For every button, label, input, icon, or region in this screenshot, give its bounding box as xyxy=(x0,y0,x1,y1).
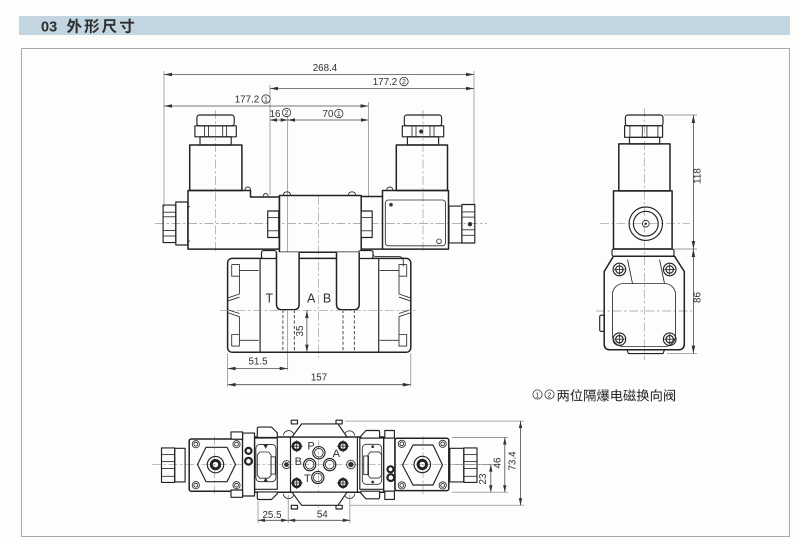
svg-text:118: 118 xyxy=(693,168,704,184)
svg-text:2: 2 xyxy=(285,110,289,117)
svg-text:177.2: 177.2 xyxy=(373,77,398,88)
svg-text:16: 16 xyxy=(270,109,281,120)
svg-text:86: 86 xyxy=(693,292,704,303)
svg-text:1: 1 xyxy=(337,111,341,118)
svg-text:177.2: 177.2 xyxy=(235,95,260,106)
svg-text:2: 2 xyxy=(402,79,406,86)
svg-text:46: 46 xyxy=(493,457,504,468)
svg-text:T: T xyxy=(265,292,273,306)
svg-text:P: P xyxy=(307,440,314,452)
svg-text:T: T xyxy=(304,473,311,485)
svg-text:1: 1 xyxy=(264,97,268,104)
svg-text:157: 157 xyxy=(311,373,327,384)
svg-text:25.5: 25.5 xyxy=(262,510,282,521)
svg-text:03: 03 xyxy=(41,20,57,36)
svg-text:51.5: 51.5 xyxy=(248,357,268,368)
svg-text:1: 1 xyxy=(536,392,540,399)
svg-text:2: 2 xyxy=(548,392,552,399)
svg-text:A: A xyxy=(307,292,316,306)
svg-text:B: B xyxy=(323,292,331,306)
svg-text:70: 70 xyxy=(323,109,334,120)
svg-text:73.4: 73.4 xyxy=(508,451,519,471)
svg-text:35: 35 xyxy=(295,325,306,336)
svg-text:23: 23 xyxy=(478,473,489,484)
svg-text:54: 54 xyxy=(317,510,328,521)
svg-text:268.4: 268.4 xyxy=(313,63,338,74)
svg-text:B: B xyxy=(295,456,302,468)
